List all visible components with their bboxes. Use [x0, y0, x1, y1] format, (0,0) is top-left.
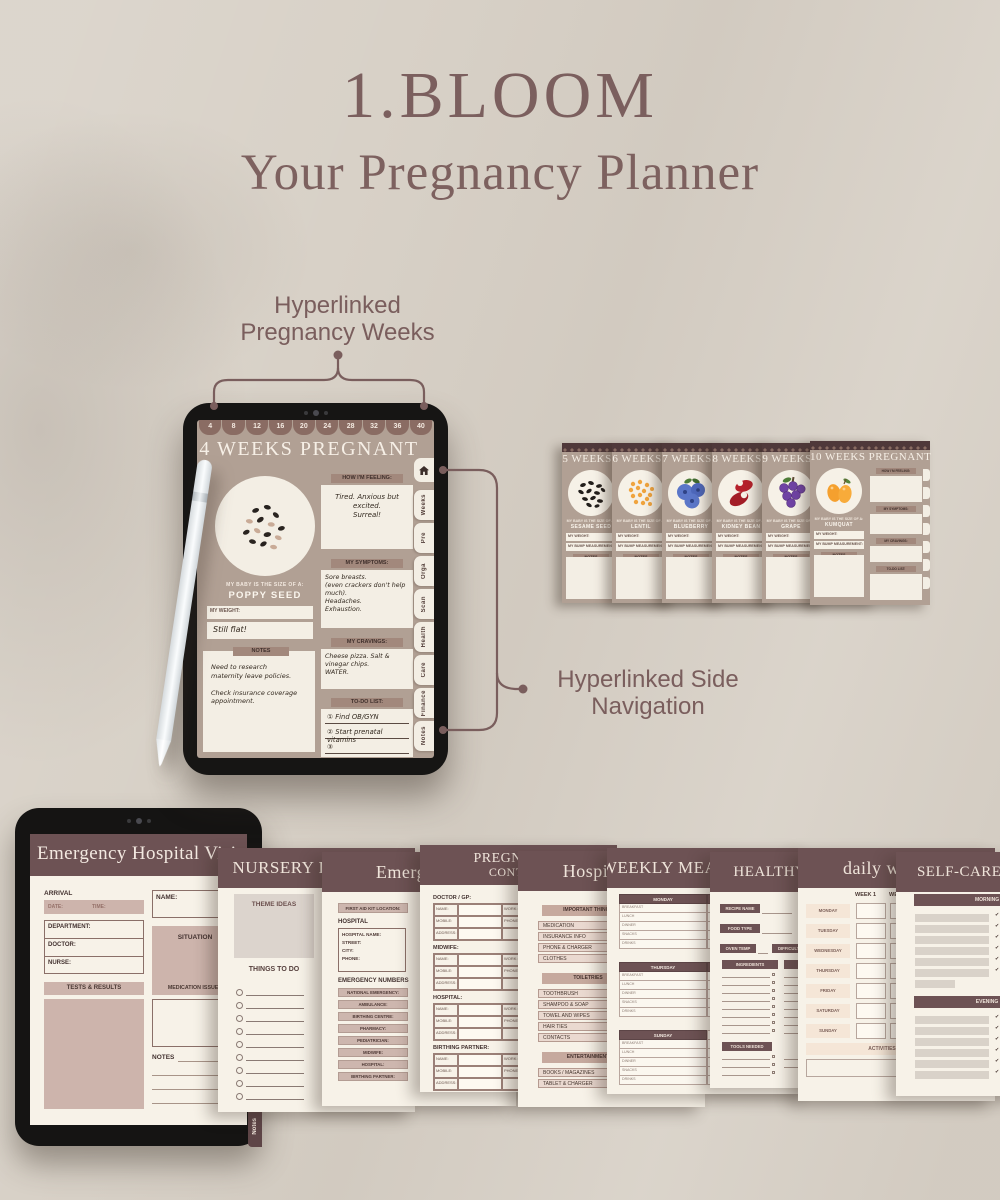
week-tab[interactable]: 28	[339, 420, 361, 435]
week-tab[interactable]: 24	[316, 420, 338, 435]
weight-note: Still flat!	[207, 622, 313, 634]
emergency-number: BIRTHING PARTNER:	[338, 1072, 408, 1081]
selfcare-title: SELF-CARE ROUTINE	[896, 852, 1000, 892]
card-size-circle	[568, 470, 614, 516]
weeks-annotation-line2: Pregnancy Weeks	[205, 319, 470, 346]
card-weight-field: MY WEIGHT:	[766, 533, 816, 541]
emergency-number: AMBULANCE:	[338, 1000, 408, 1009]
card-feeling-header: HOW I'M FEELING:	[876, 468, 916, 474]
todo-item: ① Find OB/GYN	[325, 709, 409, 724]
meal-row: BREAKFAST	[619, 1040, 707, 1049]
card-notes-panel	[666, 557, 716, 599]
home-tab[interactable]	[414, 458, 434, 482]
meal-row: LUNCH	[619, 981, 707, 990]
sidenav-annotation-line1: Hyperlinked Side	[528, 666, 768, 693]
side-tab-scan[interactable]: Scan	[414, 589, 434, 619]
home-icon	[419, 466, 429, 475]
card-weight-field: MY WEIGHT:	[666, 533, 716, 541]
meal-row: DRINKS	[619, 1008, 707, 1017]
selfcare-page: SELF-CARE ROUTINE MORNING ROUTINE ✔ ✔ ✔ …	[896, 852, 1000, 1096]
symptoms-header: MY SYMPTOMS:	[331, 559, 403, 568]
time-label: TIME:	[92, 904, 106, 910]
emergency-number: NATIONAL EMERGENCY:	[338, 988, 408, 997]
side-tab-health[interactable]: Health	[414, 622, 434, 652]
card-cravings-header: MY CRAVINGS:	[876, 538, 916, 544]
week-tab[interactable]: 8	[222, 420, 244, 435]
cravings-panel: Cheese pizza. Salt & vinegar chips. WATE…	[321, 649, 413, 689]
card-side-tab	[923, 541, 930, 553]
card-todo-panel	[870, 574, 922, 600]
card-measure-field: MY BUMP MEASUREMENT:	[716, 543, 766, 551]
recipe-name-label: RECIPE NAME	[720, 904, 760, 913]
emergency-number: PEDIATRICIAN:	[338, 1036, 408, 1045]
card-notes-panel	[566, 557, 616, 599]
emergency-page-title: Emergency Hospital Visit	[30, 834, 247, 865]
card-notes-panel	[716, 557, 766, 599]
day-chip: TUESDAY	[806, 924, 850, 938]
marketing-canvas: 1.BLOOM Your Pregnancy Planner Hyperlink…	[0, 0, 1000, 1200]
tests-header: TESTS & RESULTS	[44, 982, 144, 995]
blueberry-icon	[673, 475, 709, 511]
emergency-number: MIDWIFE:	[338, 1048, 408, 1057]
meal-row: SNACKS	[619, 1067, 707, 1076]
card-todo-header: TO-DO LIST:	[876, 566, 916, 572]
card-side-tab	[923, 487, 930, 499]
day-chip: SUNDAY	[806, 1024, 850, 1038]
day-chip: WEDNESDAY	[806, 944, 850, 958]
card-side-tab	[923, 505, 930, 517]
card-weight-field: MY WEIGHT:	[716, 533, 766, 541]
card-size-circle	[816, 468, 862, 514]
meal-row: DRINKS	[619, 1076, 707, 1085]
tablet-mockup: 481216202428323640 4 WEEKS PREGNANT	[183, 403, 448, 775]
emergency-number: PHARMACY:	[338, 1024, 408, 1033]
week-page-title: 4 WEEKS PREGNANT	[197, 438, 421, 461]
meal-row: LUNCH	[619, 1049, 707, 1058]
side-nav-tabs: Weeks Pre Orga Scan Health Care Finance …	[414, 490, 434, 754]
lentil-icon	[623, 475, 659, 511]
card-side-tab	[923, 469, 930, 481]
card-symptoms-panel	[870, 514, 922, 534]
sidenav-annotation-line2: Navigation	[528, 693, 768, 720]
arrival-label: ARRIVAL	[44, 890, 72, 897]
sidenav-connector	[435, 455, 545, 745]
situation-label: SITUATION	[178, 930, 213, 941]
oven-temp-label: OVEN TEMP	[720, 944, 756, 953]
baby-size-value: POPPY SEED	[207, 590, 323, 601]
week-tab[interactable]: 16	[269, 420, 291, 435]
card-tab-strip	[810, 441, 930, 450]
card-measure-field: MY BUMP MEASUREMENT:	[616, 543, 666, 551]
meal-row: DRINKS	[619, 940, 707, 949]
baby-size-circle	[215, 476, 315, 576]
tools-label: TOOLS NEEDED	[722, 1042, 772, 1051]
day-chip: SATURDAY	[806, 1004, 850, 1018]
emergency-page-header: Emergency Hospital Visit	[30, 834, 247, 876]
card-size-value: KUMQUAT	[810, 522, 868, 528]
kumquat-icon	[821, 473, 857, 509]
hospital-label: HOSPITAL	[338, 919, 368, 925]
date-label: DATE:	[48, 904, 63, 910]
weight-label: MY WEIGHT:	[207, 606, 313, 614]
meal-row: DINNER	[619, 1058, 707, 1067]
card-notes-panel	[766, 557, 816, 599]
weeks-connector	[200, 346, 450, 416]
nurse-field: NURSE:	[45, 957, 143, 975]
product-subtitle: Your Pregnancy Planner	[0, 144, 1000, 202]
meal-row: BREAKFAST	[619, 972, 707, 981]
weeks-annotation: Hyperlinked Pregnancy Weeks	[205, 292, 470, 346]
emergency-numbers-label: EMERGENCY NUMBERS	[338, 978, 409, 984]
kidney-bean-icon	[723, 475, 759, 511]
card-measure-field: MY BUMP MEASUREMENT:	[666, 543, 716, 551]
card-side-tab	[923, 559, 930, 571]
cravings-note: Cheese pizza. Salt & vinegar chips. WATE…	[321, 649, 413, 677]
week-cards-stack: 5 WEEKS PREGNANT MY BABY IS THE SIZE OF …	[560, 441, 932, 611]
day-header: SUNDAY	[619, 1030, 707, 1040]
card-cravings-panel	[870, 546, 922, 562]
week-tab[interactable]: 20	[293, 420, 315, 435]
card-notes-panel	[814, 555, 864, 597]
side-tab-finance[interactable]: Finance	[414, 688, 434, 718]
theme-ideas-label: THEME IDEAS	[234, 894, 314, 908]
meal-row: SNACKS	[619, 931, 707, 940]
week-card-10: 10 WEEKS PREGNANT MY BABY IS THE SIZE OF…	[810, 441, 930, 605]
planner-week-page: 481216202428323640 4 WEEKS PREGNANT	[197, 420, 434, 758]
card-size-circle	[768, 470, 814, 516]
morning-routine-header: MORNING ROUTINE	[914, 894, 1000, 906]
cravings-header: MY CRAVINGS:	[331, 638, 403, 647]
doctor-field: DOCTOR:	[45, 939, 143, 957]
phone-field: PHONE:	[339, 953, 405, 961]
emergency-number: BIRTHING CENTRE:	[338, 1012, 408, 1021]
side-tab-pre[interactable]: Pre	[414, 523, 434, 553]
todo-item: ② Start prenatal vitamins	[325, 724, 409, 739]
card-weight-field: MY WEIGHT:	[814, 531, 864, 539]
meal-row: SNACKS	[619, 999, 707, 1008]
feeling-panel: Tired. Anxious but excited. Surreal!	[321, 485, 413, 549]
sidenav-annotation: Hyperlinked Side Navigation	[528, 666, 768, 720]
arrival-bar: DATE: TIME:	[44, 900, 144, 914]
todo-panel: ① Find OB/GYN② Start prenatal vitamins③	[321, 709, 413, 757]
food-type-label: FOOD TYPE	[720, 924, 760, 933]
ingredients-label: INGREDIENTS	[722, 960, 778, 969]
baby-size-caption: MY BABY IS THE SIZE OF A:	[207, 582, 323, 588]
card-weight-field: MY WEIGHT:	[616, 533, 666, 541]
side-tab-notes[interactable]: Notes	[414, 721, 434, 751]
card-side-tab	[923, 523, 930, 535]
day-header: MONDAY	[619, 894, 707, 904]
card-size-circle	[668, 470, 714, 516]
card-weight-field: MY WEIGHT:	[566, 533, 616, 541]
card-size-circle	[718, 470, 764, 516]
week-tab[interactable]: 4	[199, 420, 221, 435]
meal-row: LUNCH	[619, 913, 707, 922]
meal-row: BREAKFAST	[619, 904, 707, 913]
side-tab-weeks[interactable]: Weeks	[414, 490, 434, 520]
feeling-note: Tired. Anxious but excited. Surreal!	[321, 485, 413, 520]
card-feeling-panel	[870, 476, 922, 502]
week-tab[interactable]: 12	[246, 420, 268, 435]
week-tab[interactable]: 40	[410, 420, 432, 435]
weeks-annotation-line1: Hyperlinked	[205, 292, 470, 319]
hospital-box: HOSPITAL NAME: STREET: CITY: PHONE:	[338, 928, 406, 972]
card-size-caption: MY BABY IS THE SIZE OF A:	[810, 517, 868, 521]
poppy-seeds-icon	[226, 487, 304, 565]
card-title: 10 WEEKS PREGNANT	[810, 451, 930, 463]
card-measure-field: MY BUMP MEASUREMENT:	[566, 543, 616, 551]
product-title: 1.BLOOM	[0, 58, 1000, 134]
feeling-header: HOW I'M FEELING:	[331, 474, 403, 483]
evening-routine-header: EVENING ROUTINE	[914, 996, 1000, 1008]
tablet-camera	[127, 818, 151, 824]
department-field: DEPARTMENT:	[45, 921, 143, 939]
first-aid-label: FIRST AID KIT LOCATION:	[338, 903, 408, 913]
weight-entry: Still flat!	[207, 622, 313, 639]
day-chip: THURSDAY	[806, 964, 850, 978]
side-tab-orga[interactable]: Orga	[414, 556, 434, 586]
card-side-tab	[923, 577, 930, 589]
emergency-visit-page: Emergency Hospital Visit ARRIVAL DATE: T…	[30, 834, 247, 1125]
side-tab-care[interactable]: Care	[414, 655, 434, 685]
meal-row: DINNER	[619, 990, 707, 999]
hospital-name-field: HOSPITAL NAME:	[339, 929, 405, 937]
notes-panel: Need to research maternity leave policie…	[203, 651, 315, 752]
symptoms-note: Sore breasts. (even crackers don't help …	[321, 570, 413, 614]
sesame-seeds-icon	[573, 475, 609, 511]
street-field: STREET:	[339, 937, 405, 945]
day-chip: FRIDAY	[806, 984, 850, 998]
notes-note: Need to research maternity leave policie…	[203, 651, 315, 706]
staff-fields-box: DEPARTMENT: DOCTOR: NURSE:	[44, 920, 144, 974]
things-to-do-label: THINGS TO DO	[234, 966, 314, 973]
card-symptoms-header: MY SYMPTOMS:	[876, 506, 916, 512]
week-tab-bar: 481216202428323640	[199, 420, 432, 435]
tests-box	[44, 999, 144, 1109]
card-size-circle	[618, 470, 664, 516]
emergency-notes-label: NOTES	[152, 1054, 174, 1061]
card-measure-field: MY BUMP MEASUREMENT:	[766, 543, 816, 551]
card-measure-field: MY BUMP MEASUREMENT:	[814, 541, 864, 549]
week-tab[interactable]: 32	[363, 420, 385, 435]
day-header: THURSDAY	[619, 962, 707, 972]
emergency-numbers-list: NATIONAL EMERGENCY:AMBULANCE:BIRTHING CE…	[338, 988, 408, 1084]
card-notes-panel	[616, 557, 666, 599]
todo-header: TO-DO LIST:	[331, 698, 403, 707]
notes-header: NOTES	[233, 647, 289, 656]
week1-label: WEEK 1	[855, 892, 876, 898]
city-field: CITY:	[339, 945, 405, 953]
meal-row: DINNER	[619, 922, 707, 931]
weight-field: MY WEIGHT:	[207, 606, 313, 619]
theme-ideas-box: THEME IDEAS	[234, 894, 314, 958]
symptoms-panel: Sore breasts. (even crackers don't help …	[321, 570, 413, 628]
emergency-number: HOSPITAL:	[338, 1060, 408, 1069]
day-chip: MONDAY	[806, 904, 850, 918]
week-tab[interactable]: 36	[386, 420, 408, 435]
grape-icon	[773, 475, 809, 511]
